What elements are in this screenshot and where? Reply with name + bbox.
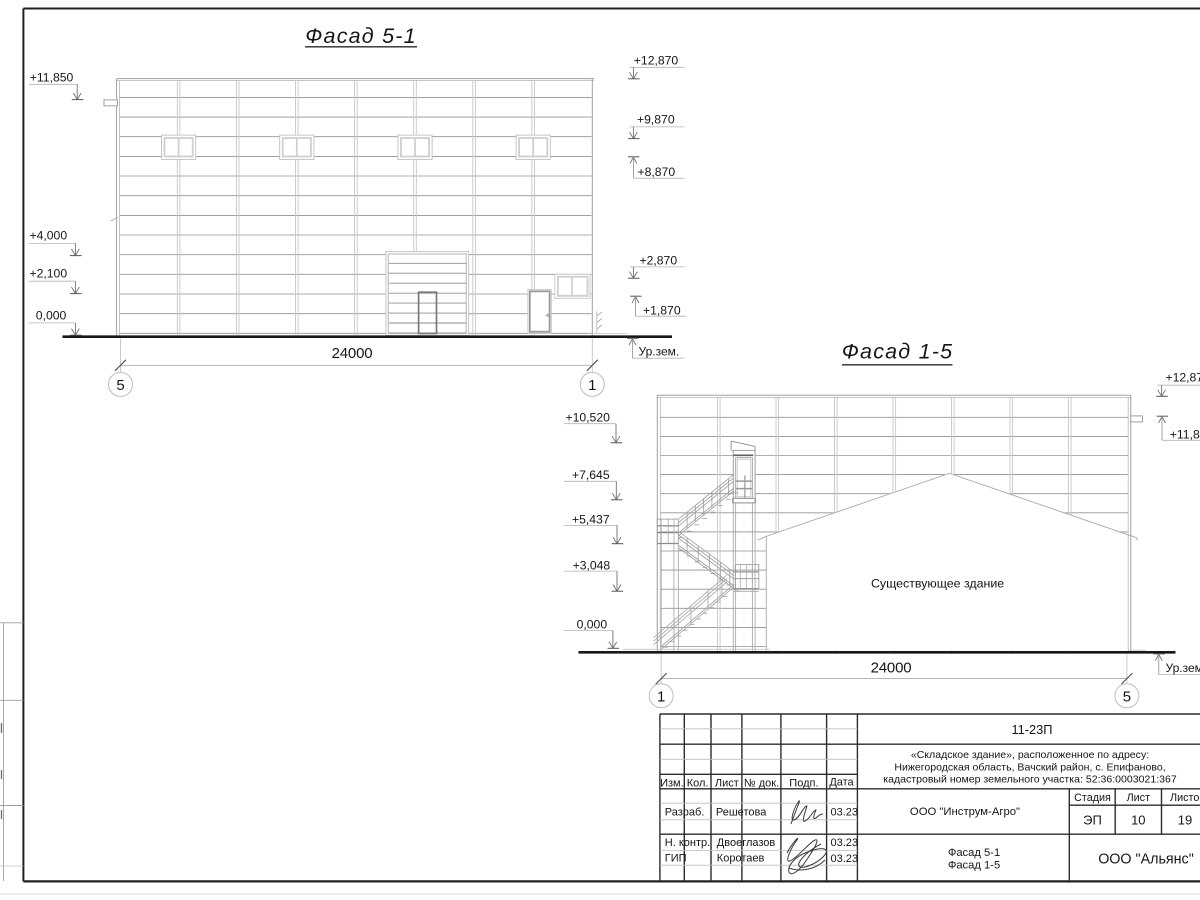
svg-text:03.23: 03.23 xyxy=(831,853,859,865)
svg-text:«Складское здание», расположен: «Складское здание», расположенное по адр… xyxy=(911,749,1149,761)
svg-text:03.23: 03.23 xyxy=(831,807,859,819)
svg-text:+11,850: +11,850 xyxy=(30,70,74,84)
svg-text:+4,000: +4,000 xyxy=(30,229,68,243)
svg-text:кадастровый номер земельного у: кадастровый номер земельного участка: 52… xyxy=(883,774,1177,786)
svg-text:03.23: 03.23 xyxy=(831,837,859,849)
svg-text:24000: 24000 xyxy=(332,345,373,362)
svg-text:1: 1 xyxy=(657,689,665,706)
svg-text:+8,870: +8,870 xyxy=(638,165,676,179)
svg-text:+3,048: +3,048 xyxy=(573,558,611,572)
svg-text:Подп.: Подп. xyxy=(789,777,818,789)
svg-text:Фасад 1-5: Фасад 1-5 xyxy=(948,859,1000,871)
svg-text:Коротаев: Коротаев xyxy=(717,853,765,865)
svg-text:+1,870: +1,870 xyxy=(643,303,681,317)
svg-text:ЭП: ЭП xyxy=(1083,812,1102,827)
svg-text:+9,870: +9,870 xyxy=(637,113,675,127)
svg-text:+7,645: +7,645 xyxy=(572,468,610,482)
svg-text:+12,870: +12,870 xyxy=(1166,370,1200,384)
svg-text:Нижегородская область, Вачский: Нижегородская область, Вачский район, с.… xyxy=(894,761,1165,773)
svg-text:Лист: Лист xyxy=(1127,792,1151,804)
svg-text:Стадия: Стадия xyxy=(1074,792,1111,804)
svg-text:Разраб.: Разраб. xyxy=(665,807,705,819)
svg-text:Фасад 1-5: Фасад 1-5 xyxy=(842,340,954,364)
svg-text:Существующее здание: Существующее здание xyxy=(871,576,1004,590)
svg-text:0,000: 0,000 xyxy=(577,618,608,632)
svg-text:11-23П: 11-23П xyxy=(1012,722,1053,737)
svg-text:1: 1 xyxy=(588,377,596,394)
svg-text:Решетова: Решетова xyxy=(716,807,767,819)
svg-text:+11,850: +11,850 xyxy=(1170,427,1200,441)
svg-text:ООО "Альянс": ООО "Альянс" xyxy=(1098,851,1194,867)
svg-text:Ур.зем.: Ур.зем. xyxy=(1166,661,1200,675)
svg-text:Лист: Лист xyxy=(715,777,739,789)
svg-text:Н. контр.: Н. контр. xyxy=(665,837,710,849)
svg-text:5: 5 xyxy=(116,377,124,394)
svg-text:5: 5 xyxy=(1123,689,1131,706)
svg-text:ГИП: ГИП xyxy=(665,853,687,865)
svg-text:Фасад 5-1: Фасад 5-1 xyxy=(948,847,1000,859)
svg-text:Изм.: Изм. xyxy=(660,777,684,789)
svg-text:Листов: Листов xyxy=(1170,792,1200,804)
svg-text:+5,437: +5,437 xyxy=(572,513,610,527)
svg-text:+2,100: +2,100 xyxy=(30,266,68,280)
svg-text:+12,870: +12,870 xyxy=(634,53,679,67)
svg-text:Дата: Дата xyxy=(829,776,854,788)
svg-text:+10,520: +10,520 xyxy=(566,411,611,425)
svg-text:24000: 24000 xyxy=(871,659,912,676)
svg-text:№ док.: № док. xyxy=(744,777,779,789)
svg-text:0,000: 0,000 xyxy=(36,308,67,322)
svg-text:Кол.: Кол. xyxy=(687,777,709,789)
svg-text:Ур.зем.: Ур.зем. xyxy=(639,345,680,359)
svg-text:Фасад 5-1: Фасад 5-1 xyxy=(305,24,417,48)
svg-text:19: 19 xyxy=(1178,812,1192,827)
svg-text:10: 10 xyxy=(1131,812,1145,827)
svg-text:+2,870: +2,870 xyxy=(640,254,678,268)
svg-text:Двоеглазов: Двоеглазов xyxy=(717,837,776,849)
svg-text:ООО "Инструм-Агро": ООО "Инструм-Агро" xyxy=(910,806,1020,818)
